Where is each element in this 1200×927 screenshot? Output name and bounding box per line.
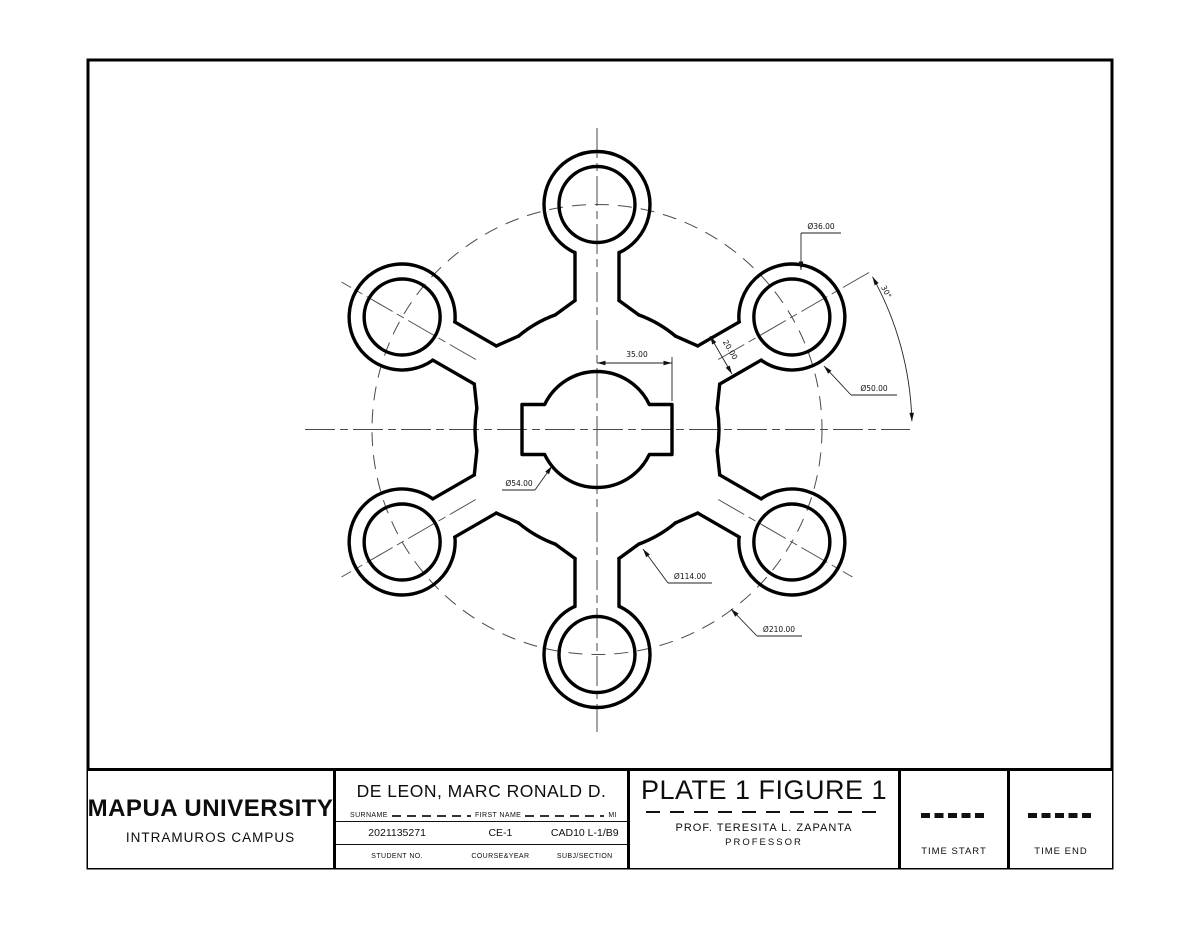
spoke-flare-line bbox=[474, 384, 477, 408]
dimension-arrowhead bbox=[909, 413, 914, 422]
spoke-flare-line bbox=[675, 513, 697, 523]
title-block: MAPUA UNIVERSITY INTRAMUROS CAMPUS DE LE… bbox=[88, 768, 1112, 868]
spoke-flare-line bbox=[619, 301, 639, 315]
spoke-flare-line bbox=[717, 451, 720, 475]
first-name-label: FIRST NAME bbox=[475, 812, 521, 819]
web-scallop-arc bbox=[519, 523, 556, 544]
web-scallop-arc bbox=[519, 315, 556, 336]
dimension-text: Ø210.00 bbox=[763, 625, 795, 634]
spoke-neck-line bbox=[720, 475, 762, 499]
spoke-flare-line bbox=[555, 301, 575, 315]
course-year-value: CE-1 bbox=[458, 827, 542, 839]
dimension-text: Ø50.00 bbox=[860, 384, 888, 393]
student-labels-row: STUDENT NO. COURSE&YEAR SUBJ/SECTION bbox=[336, 845, 627, 868]
spoke-flare-line bbox=[675, 336, 697, 346]
course-year-label: COURSE&YEAR bbox=[458, 853, 542, 860]
time-end-blank bbox=[1028, 813, 1094, 818]
student-name: DE LEON, MARC RONALD D. bbox=[336, 771, 627, 802]
campus-name: INTRAMUROS CAMPUS bbox=[126, 830, 295, 845]
web-scallop-arc bbox=[639, 523, 676, 544]
spoke-flare-line bbox=[555, 544, 575, 558]
dimension-text: Ø114.00 bbox=[674, 572, 706, 581]
radial-centerline bbox=[718, 271, 872, 360]
spoke-neck-line bbox=[455, 513, 497, 537]
dimension-text: 35.00 bbox=[626, 350, 648, 359]
dimension-text: 20.00 bbox=[721, 338, 740, 361]
spoke-neck-line bbox=[433, 360, 475, 384]
subj-section-label: SUBJ/SECTION bbox=[543, 853, 627, 860]
university-name: MAPUA UNIVERSITY bbox=[88, 795, 334, 823]
dimension-text: Ø54.00 bbox=[505, 479, 533, 488]
spoke-flare-line bbox=[717, 384, 720, 408]
spoke-neck-line bbox=[698, 322, 740, 346]
plate-divider-dashes bbox=[646, 811, 882, 813]
student-values-row: 2021135271 CE-1 CAD10 L-1/B9 bbox=[336, 822, 627, 845]
dimension-arrowhead bbox=[597, 361, 606, 366]
surname-label: SURNAME bbox=[350, 812, 388, 819]
mi-label: MI bbox=[608, 812, 617, 819]
professor-title: PROFESSOR bbox=[630, 837, 898, 848]
drawing-sheet: 35.0020.00Ø36.00Ø50.00Ø54.00Ø114.00Ø210.… bbox=[0, 0, 1200, 927]
spoke-neck-line bbox=[455, 322, 497, 346]
dimension-arrowhead bbox=[873, 277, 879, 286]
blank-line bbox=[392, 815, 471, 817]
drawing-border bbox=[88, 60, 1112, 868]
title-block-student-cell: DE LEON, MARC RONALD D. SURNAME FIRST NA… bbox=[333, 771, 627, 868]
spoke-flare-line bbox=[496, 513, 518, 523]
professor-name: PROF. TERESITA L. ZAPANTA bbox=[630, 822, 898, 834]
title-block-university-cell: MAPUA UNIVERSITY INTRAMUROS CAMPUS bbox=[88, 771, 333, 868]
time-end-label: TIME END bbox=[1034, 846, 1087, 868]
web-scallop-arc bbox=[639, 315, 676, 336]
spoke-neck-line bbox=[698, 513, 740, 537]
dimension-arrowhead bbox=[726, 365, 732, 374]
student-no-value: 2021135271 bbox=[336, 827, 458, 839]
blank-line bbox=[525, 815, 604, 817]
dimension-arrowhead bbox=[643, 549, 650, 557]
student-no-label: STUDENT NO. bbox=[336, 853, 458, 860]
title-block-plate-cell: PLATE 1 FIGURE 1 PROF. TERESITA L. ZAPAN… bbox=[627, 771, 898, 868]
web-scallop-arc bbox=[717, 408, 719, 450]
plate-title: PLATE 1 FIGURE 1 bbox=[630, 771, 898, 809]
time-start-blank bbox=[921, 813, 987, 818]
subj-section-value: CAD10 L-1/B9 bbox=[543, 827, 627, 839]
spoke-flare-line bbox=[474, 451, 477, 475]
time-end-cell: TIME END bbox=[1007, 771, 1112, 868]
time-start-label: TIME START bbox=[921, 846, 987, 868]
time-start-cell: TIME START bbox=[898, 771, 1007, 868]
dimension-text: Ø36.00 bbox=[807, 222, 835, 231]
spoke-flare-line bbox=[619, 544, 639, 558]
spoke-neck-line bbox=[433, 475, 475, 499]
dimension-text: 30° bbox=[879, 284, 893, 300]
name-field-labels: SURNAME FIRST NAME MI bbox=[336, 802, 627, 822]
dimension-arrowhead bbox=[664, 361, 673, 366]
spoke-flare-line bbox=[496, 336, 518, 346]
angular-dimension-arc bbox=[873, 277, 912, 421]
dimension-arrowhead bbox=[545, 466, 552, 474]
web-scallop-arc bbox=[475, 408, 477, 450]
